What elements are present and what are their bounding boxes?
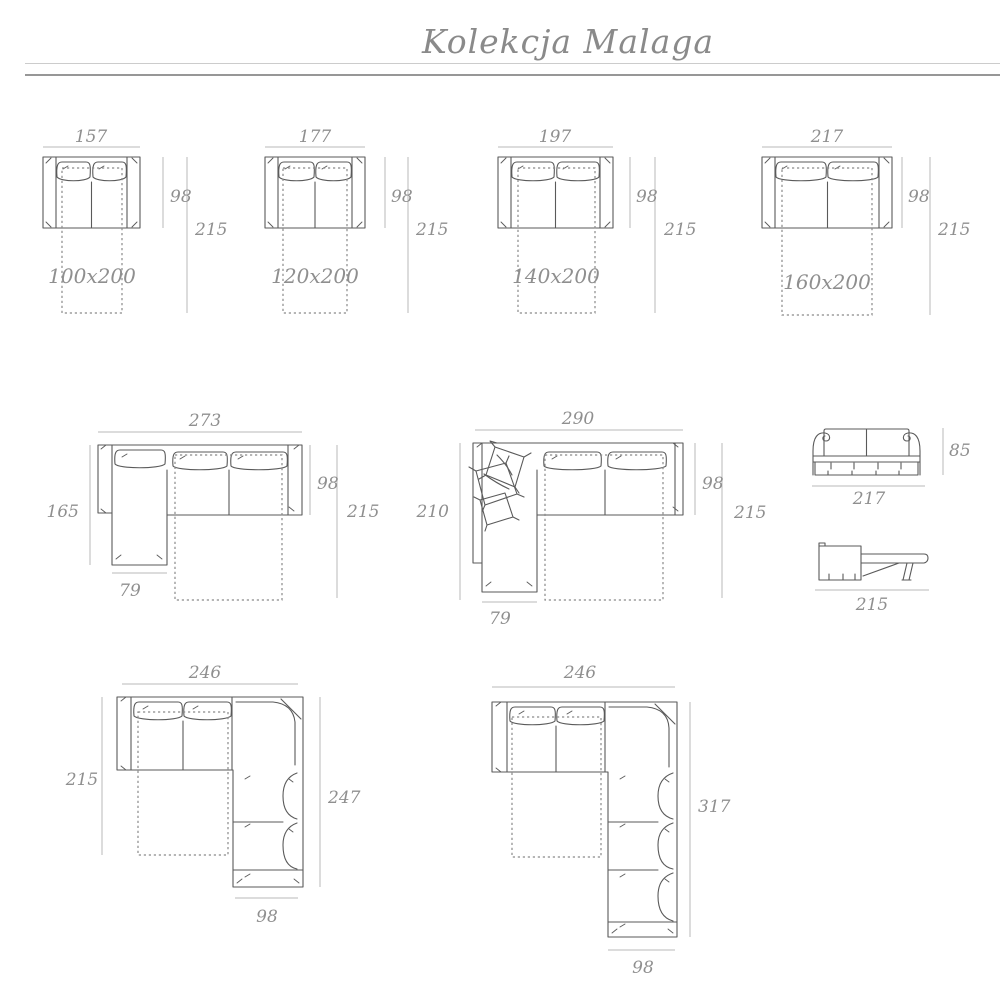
mattress-outline — [545, 455, 663, 600]
dim-width: 273 — [188, 411, 221, 431]
dim-width: 217 — [810, 127, 844, 147]
corner-sofa-top-view — [117, 697, 303, 887]
page-title: Kolekcja Malaga — [68, 22, 1000, 61]
dim-chaise-width: 79 — [119, 581, 141, 601]
dim-chaise-length: 210 — [416, 502, 450, 522]
dim-height: 85 — [949, 441, 971, 461]
sofabed-side-view — [819, 543, 928, 580]
dim-width: 217 — [852, 489, 886, 509]
diagram-corner-247: 246 215 247 98 — [55, 655, 365, 945]
corner-ticks — [496, 702, 673, 933]
dim-length: 215 — [855, 595, 888, 615]
dim-depth: 98 — [391, 187, 413, 207]
catalog-page: { "title": "Kolekcja Malaga", "diagrams"… — [0, 0, 1000, 1000]
diagram-corner-317: 246 317 98 — [425, 655, 725, 990]
dim-arm-width: 98 — [256, 907, 278, 927]
dim-chaise-length: 165 — [47, 502, 79, 522]
diagram-front-view: 85 217 — [795, 415, 995, 520]
throw-pillows — [469, 441, 531, 531]
dim-length: 215 — [346, 502, 379, 522]
mattress-outline — [518, 168, 595, 313]
mattress-size-label: 160x200 — [783, 270, 871, 294]
diagram-sofabed-120x200: 177 98 215 120x200 — [255, 125, 465, 335]
header-rule-dark — [25, 74, 1000, 76]
header-rule-light — [25, 63, 1000, 64]
dim-arm-width: 98 — [632, 958, 654, 978]
mattress-size-label: 140x200 — [512, 264, 600, 288]
dim-width: 177 — [299, 127, 332, 147]
dim-width: 246 — [188, 663, 222, 683]
dim-depth: 98 — [636, 187, 658, 207]
diagram-corner-290: 290 210 79 98 215 — [420, 405, 765, 640]
corner-ticks — [101, 445, 299, 559]
dim-depth: 98 — [170, 187, 192, 207]
sofa-top-view — [498, 157, 613, 228]
dim-depth: 98 — [317, 474, 339, 494]
dim-depth: 98 — [908, 187, 930, 207]
diagram-sofabed-160x200: 217 98 215 160x200 — [752, 125, 972, 340]
dim-arm-length: 247 — [327, 788, 361, 808]
dim-width: 157 — [75, 127, 108, 147]
corner-sofa-top-view — [98, 445, 302, 565]
diagram-sofabed-140x200: 197 98 215 140x200 — [488, 125, 703, 335]
mattress-size-label: 120x200 — [271, 264, 359, 288]
dim-chaise-width: 79 — [489, 609, 511, 629]
diagram-corner-273: 273 165 79 98 215 — [50, 405, 380, 635]
mattress-size-label: 100x200 — [48, 264, 136, 288]
diagram-sofabed-100x200: 157 98 215 100x200 — [35, 125, 235, 335]
dim-side-depth: 215 — [65, 770, 98, 790]
dim-length: 215 — [194, 220, 227, 240]
diagram-side-view-open: 215 — [795, 530, 995, 625]
dim-length: 215 — [415, 220, 448, 240]
dim-length: 215 — [663, 220, 696, 240]
dim-depth: 98 — [702, 474, 724, 494]
dim-length: 215 — [937, 220, 970, 240]
sofa-top-view — [43, 157, 140, 228]
corner-sofa-top-view — [473, 443, 683, 592]
dim-width: 290 — [561, 409, 595, 429]
dim-width: 246 — [563, 663, 597, 683]
dim-arm-length: 317 — [698, 797, 731, 817]
dim-width: 197 — [539, 127, 572, 147]
dim-length: 215 — [733, 503, 766, 523]
sofa-front-view — [813, 429, 920, 475]
corner-sofa-top-view — [492, 702, 677, 937]
